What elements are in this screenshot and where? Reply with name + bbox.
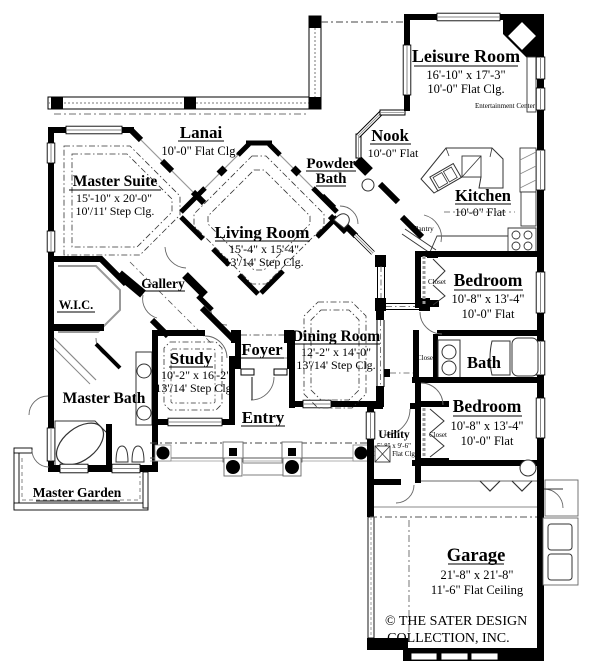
- svg-text:Powder: Powder: [306, 156, 355, 172]
- svg-text:- COLLECTION, INC.: - COLLECTION, INC.: [379, 631, 510, 646]
- svg-text:Master Suite: Master Suite: [73, 173, 158, 190]
- svg-text:Closet: Closet: [429, 431, 447, 439]
- svg-text:© THE SATER DESIGN: © THE SATER DESIGN: [385, 614, 527, 629]
- svg-text:Living Room: Living Room: [215, 223, 310, 242]
- svg-text:Entertainment Center: Entertainment Center: [475, 102, 536, 110]
- svg-text:10'-8" x 13'-4": 10'-8" x 13'-4": [450, 419, 523, 433]
- svg-text:Kitchen: Kitchen: [455, 186, 511, 205]
- svg-text:Closet: Closet: [417, 354, 435, 362]
- svg-text:15'-4" x 15'-4": 15'-4" x 15'-4": [229, 242, 299, 256]
- svg-text:10'-8" x 13'-4": 10'-8" x 13'-4": [451, 292, 524, 306]
- svg-text:12'-2" x 14'-0": 12'-2" x 14'-0": [301, 345, 371, 359]
- svg-text:10'/11' Step Clg.: 10'/11' Step Clg.: [76, 204, 155, 218]
- svg-text:10'-0" Flat: 10'-0" Flat: [368, 146, 419, 160]
- svg-text:13'/14' Step Clg.: 13'/14' Step Clg.: [296, 358, 375, 372]
- svg-text:Lanai: Lanai: [180, 123, 223, 142]
- svg-text:Nook: Nook: [371, 126, 409, 145]
- svg-text:Leisure Room: Leisure Room: [412, 46, 520, 66]
- svg-text:13'/14' Step Clg.: 13'/14' Step Clg.: [224, 255, 303, 269]
- svg-text:Master Bath: Master Bath: [63, 390, 146, 407]
- svg-text:W.I.C.: W.I.C.: [59, 298, 94, 312]
- svg-text:Study: Study: [170, 349, 213, 368]
- svg-text:11'-6" Flat Ceiling: 11'-6" Flat Ceiling: [431, 583, 524, 597]
- svg-text:Garage: Garage: [447, 546, 506, 566]
- svg-text:Master Garden: Master Garden: [33, 485, 122, 500]
- svg-text:Pantry: Pantry: [414, 224, 434, 233]
- svg-text:Foyer: Foyer: [241, 340, 282, 359]
- svg-text:16'-10" x 17'-3": 16'-10" x 17'-3": [426, 68, 505, 82]
- svg-text:Closet: Closet: [428, 278, 446, 286]
- svg-text:Utility: Utility: [378, 429, 410, 441]
- svg-text:10'-0" Flat: 10'-0" Flat: [462, 307, 515, 321]
- svg-text:13'/14' Step Clg.: 13'/14' Step Clg.: [155, 381, 234, 395]
- svg-text:Bath: Bath: [467, 353, 501, 372]
- svg-text:15'-10" x 20'-0": 15'-10" x 20'-0": [76, 191, 152, 205]
- svg-text:10'-0" Flat Clg.: 10'-0" Flat Clg.: [427, 82, 504, 96]
- svg-text:Bedroom: Bedroom: [454, 270, 523, 290]
- svg-text:Bedroom: Bedroom: [453, 396, 522, 416]
- svg-text:10'-0" Flat: 10'-0" Flat: [461, 434, 514, 448]
- svg-text:21'-8" x 21'-8": 21'-8" x 21'-8": [440, 568, 513, 582]
- svg-text:Bath: Bath: [316, 171, 348, 187]
- svg-text:Entry: Entry: [242, 408, 285, 427]
- svg-text:Gallery: Gallery: [141, 276, 185, 291]
- svg-text:Dining Room: Dining Room: [292, 328, 380, 345]
- svg-text:10'-0" Flat Clg.: 10'-0" Flat Clg.: [161, 144, 238, 158]
- svg-text:10'-2" x 16'-2": 10'-2" x 16'-2": [161, 368, 231, 382]
